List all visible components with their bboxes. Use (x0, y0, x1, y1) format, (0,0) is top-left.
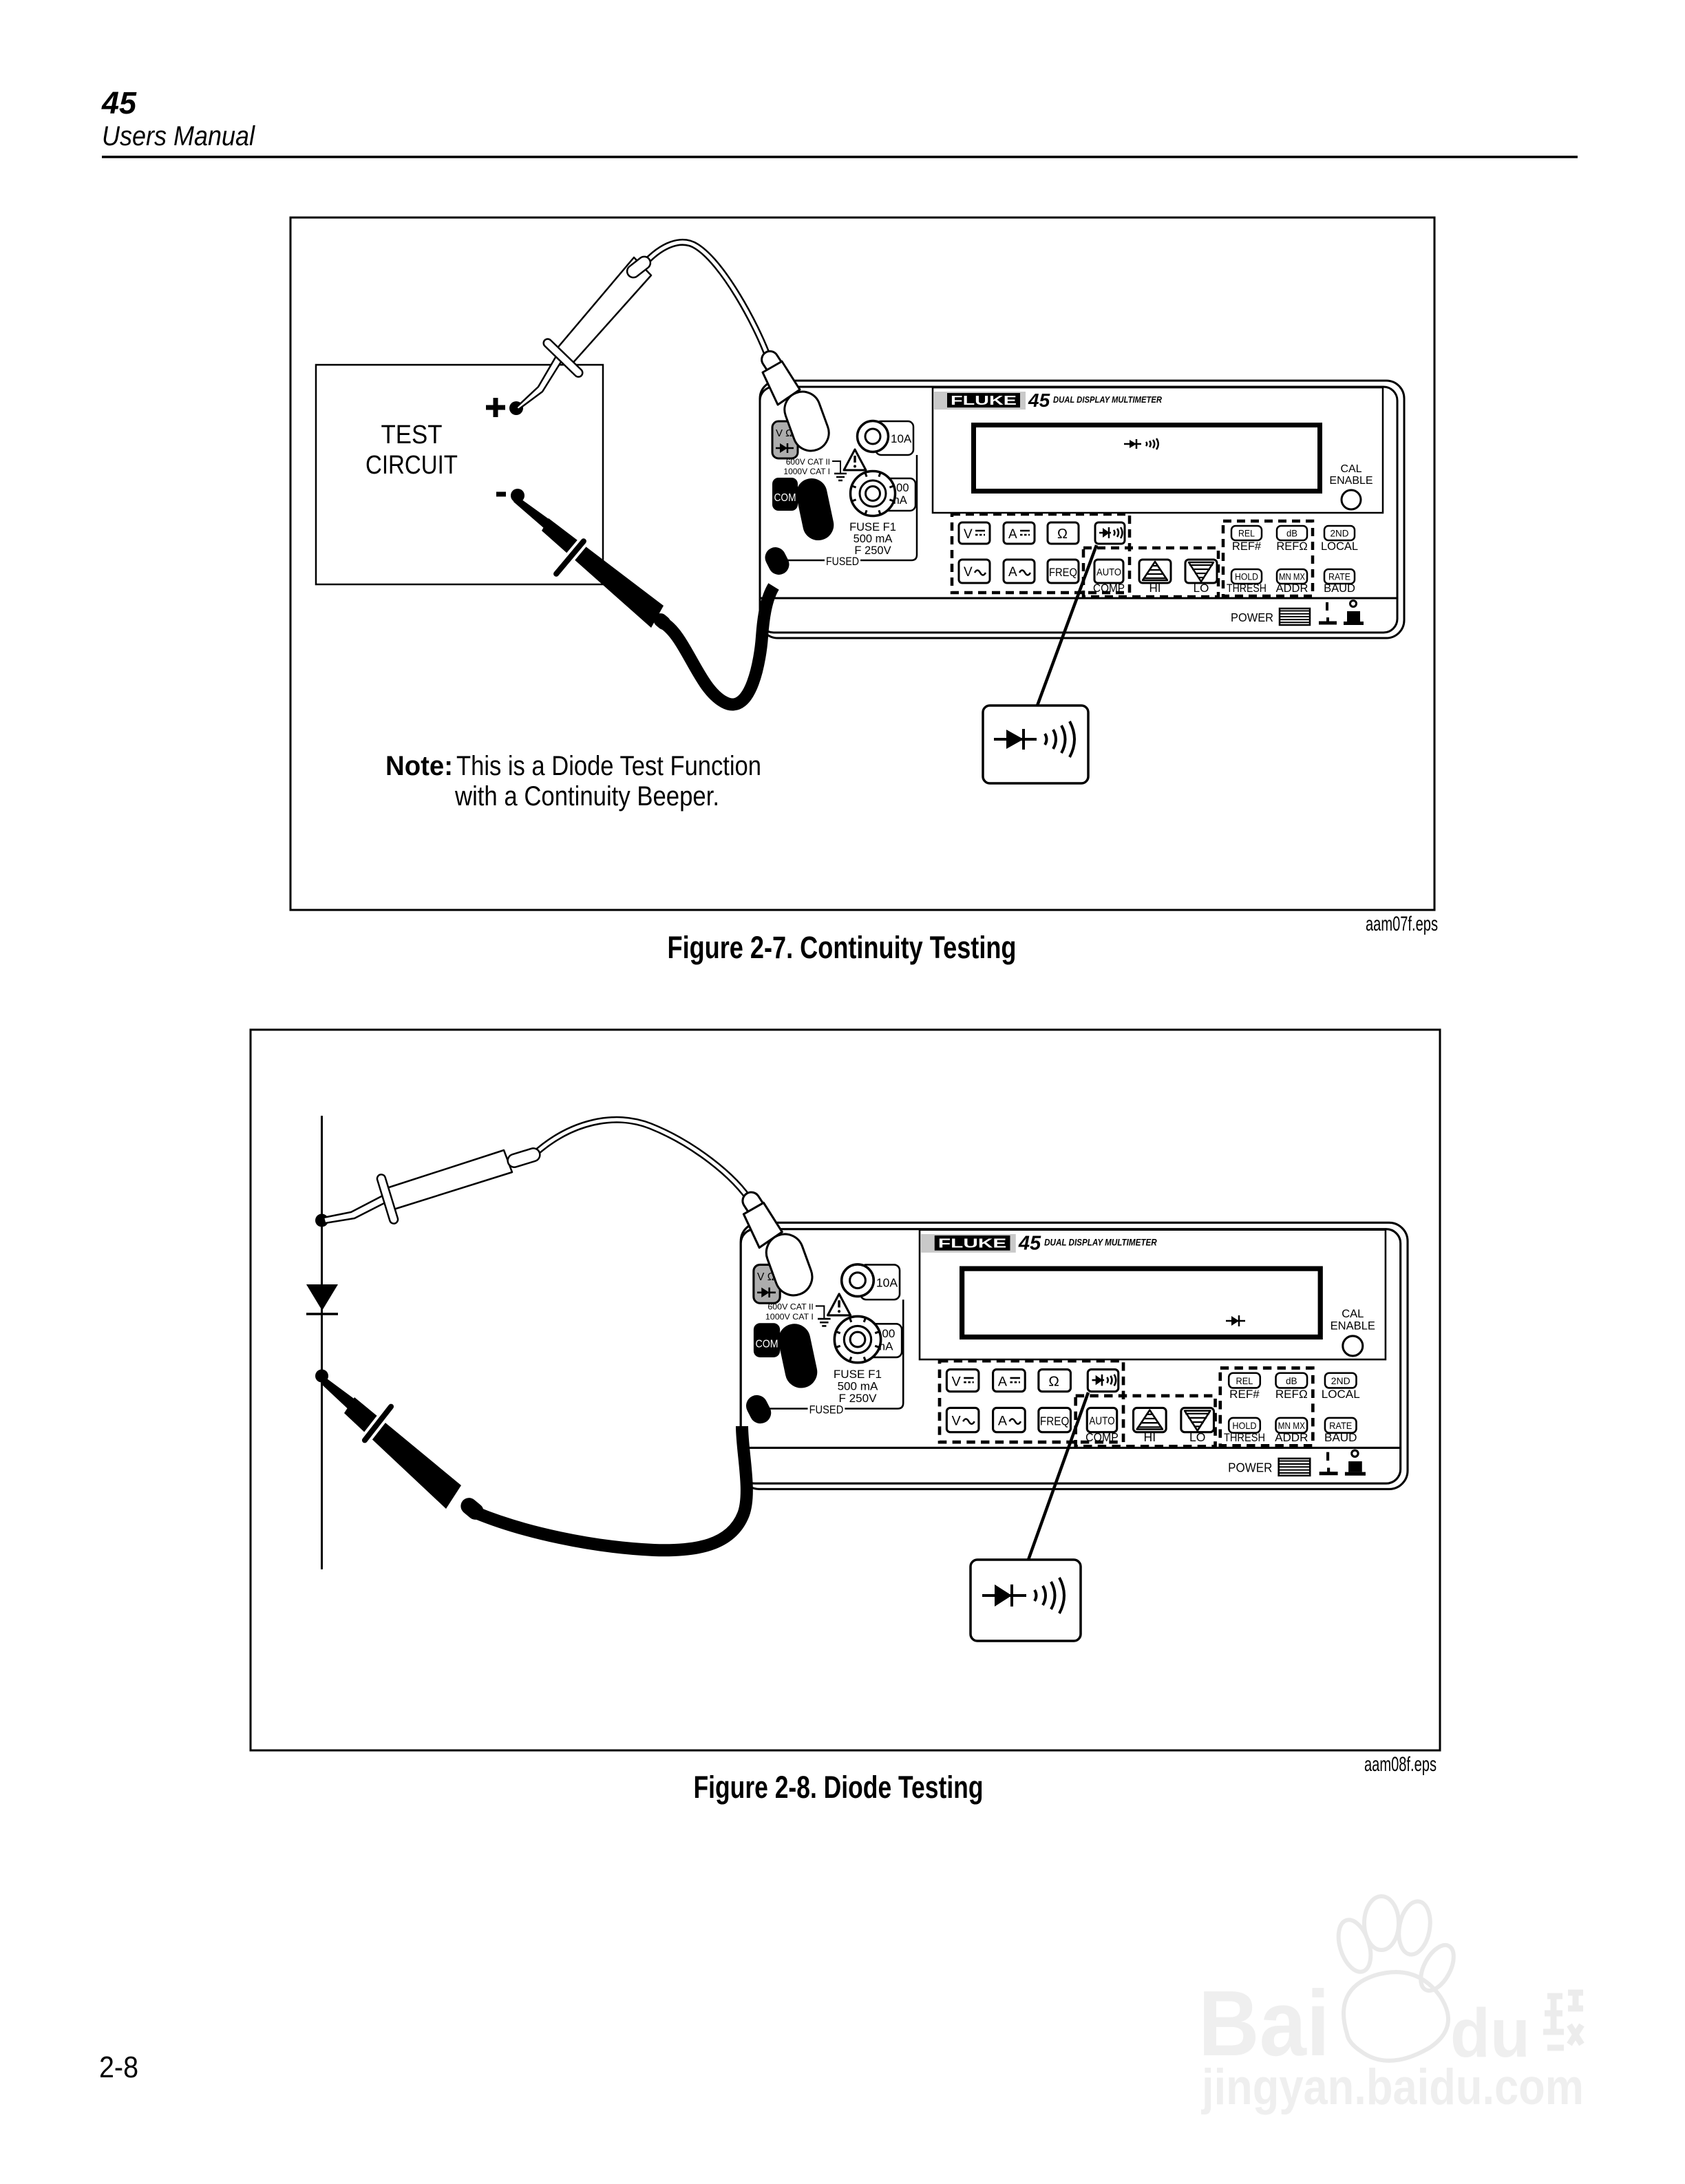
svg-text:with a Continuity Beeper.: with a Continuity Beeper. (454, 781, 719, 812)
svg-text:aam08f.eps: aam08f.eps (1364, 1753, 1437, 1776)
svg-text:jingyan.baidu.com: jingyan.baidu.com (1200, 2059, 1584, 2115)
svg-text:45: 45 (101, 85, 137, 120)
svg-text:This is a Diode Test Function: This is a Diode Test Function (456, 751, 761, 781)
svg-text:Users Manual: Users Manual (102, 121, 255, 151)
svg-text:2-8: 2-8 (99, 2050, 138, 2084)
svg-text:Figure 2-8. Diode Testing: Figure 2-8. Diode Testing (694, 1770, 984, 1805)
svg-text:Note:: Note: (385, 751, 453, 781)
svg-text:TEST: TEST (381, 421, 443, 449)
svg-text:CIRCUIT: CIRCUIT (365, 451, 458, 480)
svg-text:aam07f.eps: aam07f.eps (1366, 913, 1438, 935)
svg-text:Figure 2-7. Continuity Testing: Figure 2-7. Continuity Testing (668, 930, 1017, 965)
